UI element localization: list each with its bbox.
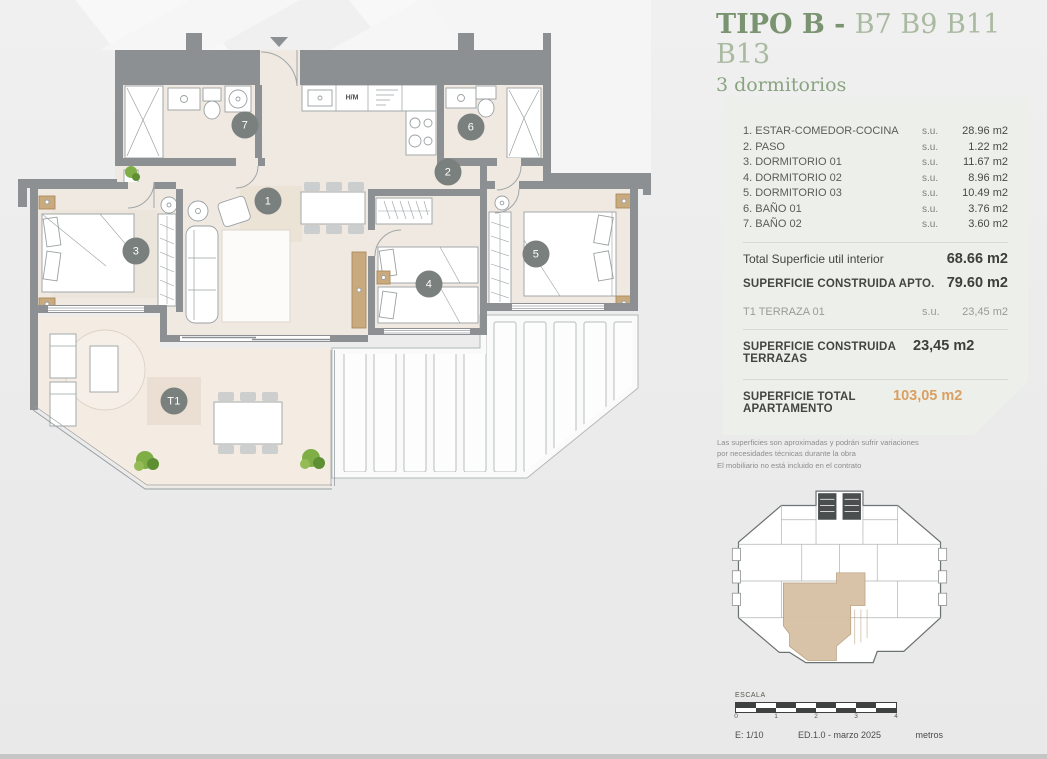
entrance-arrow-icon [270,37,288,47]
room-badge-7: 7 [232,112,259,139]
divider [743,242,1008,243]
terrace-badge-t1: T1 [161,388,188,415]
total-util-row: Total Superficie util interior 68.66 m2 [743,251,1008,267]
divider [743,329,1008,330]
scale-label: ESCALA [735,692,911,699]
edition-date: ED.1.0 - marzo 2025 [798,730,881,740]
kitchen-hm-label: H/M [346,95,359,102]
room-badge-1: 1 [255,188,282,215]
floor-plan-drawing [0,0,700,540]
key-plan [722,483,957,687]
construida-apto-row: SUPERFICIE CONSTRUIDA APTO. 79.60 m2 [743,275,1008,291]
floor-plan: 1 2 3 4 5 6 7 T1 H/M [0,0,700,540]
neighbour-terrace [332,315,638,478]
floorplan-brochure-page: { "title": { "type_label": "TIPO B - ", … [0,0,1047,759]
terraza-row: T1 TERRAZA 01 s.u. 23,45 m2 [743,305,1008,321]
divider [743,379,1008,380]
key-plan-drawing [722,483,957,682]
scale-ratio: E: 1/10 [735,730,764,740]
area-row: 6. BAÑO 01s.u.3.76 m2 [743,202,1008,218]
area-row: 3. DORMITORIO 01s.u.11.67 m2 [743,155,1008,171]
room-badge-6: 6 [458,114,485,141]
total-apartamento-row: SUPERFICIE TOTAL APARTAMENTO 103,05 m2 [743,388,1008,415]
room-badge-2: 2 [435,159,462,186]
title-block: TIPO B - B7 B9 B11 B13 3 dormitorios [716,10,1040,96]
area-row: 1. ESTAR-COMEDOR-COCINAs.u.28.96 m2 [743,124,1008,140]
page-title: TIPO B - [716,9,855,40]
construida-terrazas-row: SUPERFICIE CONSTRUIDA TERRAZAS 23,45 m2 [743,338,1008,365]
scale-units: metros [915,730,943,740]
footer-bar [0,754,1047,759]
disclaimer-text: Las superficies son aproximadas y podrán… [717,437,1017,471]
scale-footer: E: 1/10 ED.1.0 - marzo 2025 metros [735,730,943,740]
area-row: 4. DORMITORIO 02s.u.8.96 m2 [743,171,1008,187]
area-row: 5. DORMITORIO 03s.u.10.49 m2 [743,186,1008,202]
room-badge-4: 4 [416,271,443,298]
subtitle-bedrooms: 3 dormitorios [716,74,1040,96]
area-summary-panel: 1. ESTAR-COMEDOR-COCINAs.u.28.96 m2 2. P… [723,97,1028,435]
scale-bar-graphic [735,702,897,713]
room-badge-5: 5 [523,241,550,268]
area-row: 7. BAÑO 02s.u.3.60 m2 [743,217,1008,233]
area-row: 2. PASOs.u.1.22 m2 [743,140,1008,156]
scale-ticks: 0 1 2 3 4 [735,713,897,723]
scale-bar: ESCALA 0 1 2 3 4 E: 1/10 ED.1.0 - marzo … [735,692,911,740]
room-badge-3: 3 [123,238,150,265]
